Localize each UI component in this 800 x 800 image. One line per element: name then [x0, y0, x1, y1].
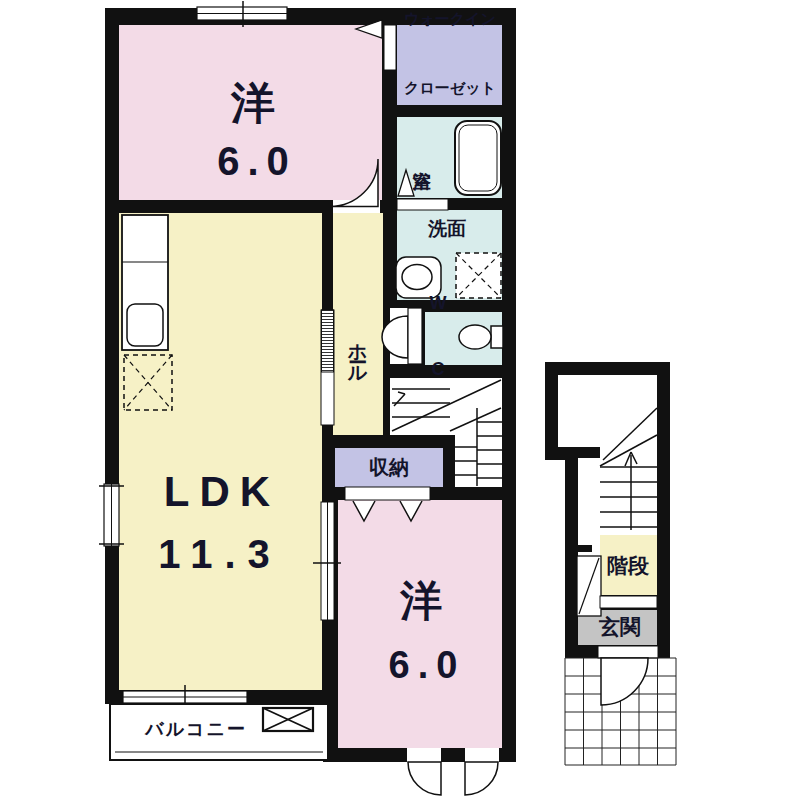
front-door: [598, 646, 658, 658]
bedroom-bottom-doors: [407, 748, 499, 795]
wic-line2: クローゼット: [404, 76, 496, 99]
wic-door: [356, 20, 396, 70]
bedroom-bottom-area: 6.0: [389, 643, 466, 689]
front-door-swing: [601, 658, 648, 705]
refrigerator-space-icon: [124, 355, 172, 410]
ldk-area: 11.3: [158, 530, 282, 578]
bathroom-door: [397, 170, 448, 210]
toilet-icon: [459, 325, 503, 349]
stairs-1f-icon: [600, 408, 657, 530]
walk-in-closet-label: ウォークイン クローゼット: [404, 0, 496, 145]
bedroom-top-name: 洋: [231, 77, 275, 130]
bedroom-top-area: 6.0: [217, 137, 297, 185]
sliding-door-bedroom-bottom: [313, 502, 341, 620]
understair-door: [577, 545, 601, 616]
floor-plan: 洋 6.0 ウォークイン クローゼット 浴室 洗面 W C ホール 収納 LDK…: [0, 0, 800, 800]
kitchen-counter-icon: [122, 215, 168, 350]
sliding-door-hall: [321, 310, 334, 425]
washer-space-icon: [456, 253, 501, 298]
wc-line2: C: [428, 358, 448, 380]
entrance-step: [600, 596, 657, 608]
entrance-label: 玄関: [599, 614, 641, 639]
hall-label: ホール: [346, 330, 369, 373]
balcony-label: バルコニー: [145, 719, 247, 741]
window-top: [197, 1, 287, 27]
washroom-label: 洗面: [428, 218, 466, 241]
storage-label: 収納: [369, 455, 409, 479]
stairwell-label: 階段: [607, 553, 649, 578]
balcony-equipment-icon: [263, 708, 313, 731]
toilet-door: [382, 308, 422, 364]
storage-folding-door: [345, 487, 430, 521]
bedroom-bottom-name: 洋: [400, 576, 442, 626]
wc-line1: W: [428, 292, 448, 314]
window-left: [99, 484, 124, 546]
wic-line1: ウォークイン: [404, 7, 496, 30]
ldk-name: LDK: [164, 467, 280, 517]
bedroom-top-door: [330, 159, 380, 213]
toilet-label: W C: [428, 248, 448, 424]
